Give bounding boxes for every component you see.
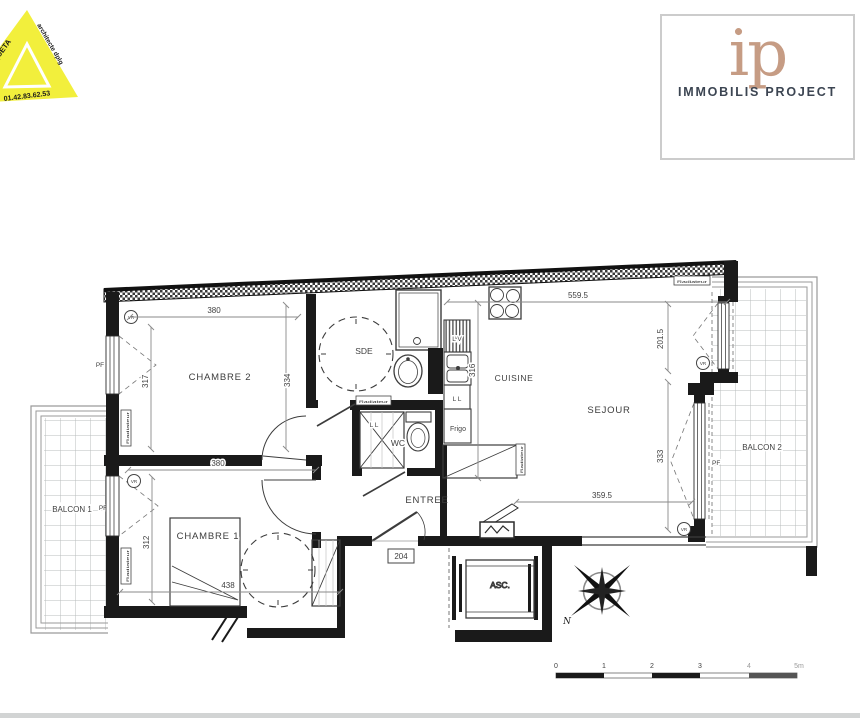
dim-sejour-right-lower: 333	[656, 449, 665, 463]
room-label-chambre1: CHAMBRE 1	[177, 531, 240, 542]
scale-tick-5m: 5m	[794, 663, 804, 670]
radiator-label: Radiateur	[125, 411, 130, 444]
radiator-label: Radiateur	[125, 549, 130, 582]
scale-tick-0: 0	[554, 663, 558, 670]
scale-tick-4: 4	[747, 663, 751, 670]
room-label-chambre2: CHAMBRE 2	[189, 372, 252, 383]
door-arc-entrance	[417, 512, 425, 540]
floor-plan: RC ROQUETA architecte dplg 01.42.83.62.5…	[0, 0, 860, 718]
dim-sejour-top: 559.5	[568, 291, 589, 300]
window-label-pf-chambre2: PF	[96, 362, 104, 369]
door-arc-chambre1	[262, 480, 316, 534]
door-leaf-wc	[363, 472, 405, 496]
electric-box	[480, 504, 518, 538]
room-label-balcon2: BALCON 2	[742, 443, 782, 452]
vr-label: VR	[700, 361, 707, 366]
balcony-1: BALCON 1 PF	[31, 406, 108, 633]
window-sejour-upper	[718, 303, 729, 369]
room-label-wc: WC	[391, 438, 405, 448]
doors	[262, 404, 425, 541]
window-sejour-lower	[694, 403, 705, 519]
appliance-label-ll-kitchen: L L	[453, 396, 462, 403]
dim-chambre2-left: 317	[141, 374, 150, 388]
compass-rose: N	[562, 565, 630, 627]
balcony1-tiles	[44, 418, 108, 630]
turning-circle	[241, 533, 315, 607]
page: ip IMMOBILIS PROJECT RC ROQUETA architec…	[0, 0, 860, 718]
dim-chambre1-left: 312	[142, 535, 151, 549]
appliance-label-lv: L V	[452, 336, 462, 343]
shower-tray	[396, 290, 441, 350]
facade-thin-lines	[582, 537, 706, 545]
window-chambre2	[106, 336, 119, 394]
toilet-tank	[406, 412, 431, 422]
dim-chambre1-width: 380	[211, 459, 225, 468]
dim-cuisine-height: 316	[468, 363, 477, 377]
appliance-label-ll-wc: L L	[370, 422, 379, 429]
room-labels: CHAMBRE 2 SDE CUISINE SEJOUR ENTREE WC C…	[177, 336, 631, 542]
toilet-bowl	[407, 423, 429, 451]
shower-drain-icon	[414, 338, 421, 345]
dim-chambre1-bottom: 438	[221, 581, 235, 590]
room-label-balcon1: BALCON 1	[52, 505, 92, 514]
room-label-asc: ASC.	[490, 580, 510, 590]
sde-fixtures	[319, 290, 443, 394]
vr-label: VR	[131, 479, 138, 484]
wall-break-marks	[212, 615, 238, 642]
photo-edge-strip	[0, 713, 860, 718]
unit-number: 204	[394, 552, 408, 561]
unit-number-badge: 204	[388, 549, 414, 563]
hob	[489, 287, 521, 319]
scale-tick-3: 3	[698, 663, 702, 670]
dim-chambre2-width: 380	[207, 306, 221, 315]
appliance-label-frigo: Frigo	[450, 426, 466, 433]
radiator-label: Radiateur	[359, 399, 389, 404]
door-leaf-entrance	[372, 512, 417, 541]
compass-north-label: N	[562, 617, 572, 627]
dim-sejour-bottom: 359.5	[592, 491, 613, 500]
door-arc-chambre2	[262, 416, 306, 460]
scale-tick-1: 1	[602, 663, 606, 670]
architect-stamp: RC ROQUETA architecte dplg 01.42.83.62.5…	[0, 10, 78, 104]
dim-chambre2-right: 334	[283, 373, 292, 387]
vr-label: VR	[681, 527, 688, 532]
washbasin-tap-icon	[406, 357, 410, 361]
elevator: ASC.	[449, 548, 538, 628]
radiator-label: Radiateur	[519, 445, 524, 473]
window-chambre1	[106, 476, 119, 536]
scale-tick-2: 2	[650, 663, 654, 670]
door-leaf-sde	[317, 404, 355, 426]
room-label-sde: SDE	[355, 346, 373, 356]
dimensions: 380 317 334 316 559.5 201.5 333 359.5 38…	[117, 291, 730, 605]
sink-tap-icon	[456, 366, 460, 370]
scale-bar: 0 1 2 3 4 5m	[554, 663, 804, 678]
radiator-label: Radiateur	[677, 279, 708, 284]
room-label-entree: ENTREE	[405, 495, 448, 506]
room-label-cuisine: CUISINE	[495, 373, 534, 383]
dim-sejour-right-upper: 201.5	[656, 328, 665, 349]
room-label-sejour: SEJOUR	[587, 405, 630, 416]
window-label-pf-sejour: PF	[712, 460, 720, 467]
